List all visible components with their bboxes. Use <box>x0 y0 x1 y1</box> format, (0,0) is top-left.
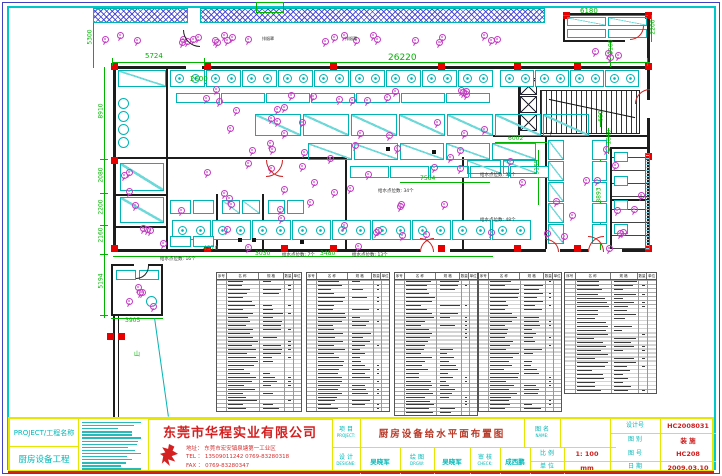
table-header-cell: 名 称 <box>227 273 259 279</box>
equipment-table: 序号名 称规 格数量单位 <box>306 272 390 412</box>
note-line <box>82 425 134 426</box>
category-value: 装 施 <box>660 433 716 447</box>
item-value: 厨房设备给水平面布置图 <box>360 419 524 447</box>
note-line <box>82 450 135 451</box>
note-line <box>82 431 132 432</box>
category-label: 图 别 <box>610 433 660 447</box>
sheet-bottom-rule <box>8 471 714 473</box>
table-header-cell: 数量 <box>372 273 381 279</box>
checker-name: 成西鹏 <box>500 447 530 474</box>
table-header-cell: 规 格 <box>436 273 460 279</box>
check-label: 审 核CHECK: <box>470 447 500 474</box>
note-line <box>82 444 137 445</box>
equipment-table: 序号名 称规 格数量单位 <box>394 272 478 416</box>
table-header-cell: 序号 <box>307 273 317 279</box>
note-line <box>82 462 126 463</box>
design-no-label: 设计号 <box>610 419 660 433</box>
table-header-cell: 单位 <box>553 273 561 279</box>
company-address: 地址： 东莞市宏安镇泉塘第一工业区 <box>186 445 289 453</box>
company-fax: FAX ： 0769-83280347 <box>186 462 289 470</box>
note-line <box>82 459 132 460</box>
equipment-table-header: 序号名 称规 格数量单位 <box>565 273 656 280</box>
designer-name: 吴晓军 <box>360 447 400 474</box>
sheet-no-value: HC208 <box>660 447 716 461</box>
equipment-table-header: 序号名 称规 格数量单位 <box>395 273 477 280</box>
note-line <box>82 428 118 429</box>
name-label: 图 名NAME: <box>524 419 560 447</box>
table-header-cell: 规 格 <box>348 273 372 279</box>
note-line <box>82 468 141 469</box>
table-header-cell: 序号 <box>395 273 405 279</box>
designer-label: 设 计DESIGNE: <box>332 447 360 474</box>
table-body <box>307 280 389 411</box>
titleblock-grid-line <box>148 419 332 420</box>
table-body <box>217 280 301 411</box>
table-header-cell: 序号 <box>565 273 576 279</box>
equipment-list-tables: 序号名 称规 格数量单位序号名 称规 格数量单位序号名 称规 格数量单位序号名 … <box>0 0 722 476</box>
table-header-cell: 数量 <box>638 273 648 279</box>
table-header-cell: 单位 <box>293 273 301 279</box>
table-header-cell: 名 称 <box>317 273 348 279</box>
table-body <box>479 280 561 411</box>
project-label: PROJECT/工程名称 <box>10 419 78 446</box>
equipment-table-header: 序号名 称规 格数量单位 <box>307 273 389 280</box>
note-line <box>82 422 141 423</box>
notes-block <box>78 419 148 472</box>
scale-label: 比 例 <box>530 447 564 461</box>
project-name: 厨房设备工程 <box>10 446 78 472</box>
table-header-cell: 序号 <box>217 273 227 279</box>
table-header-cell: 名 称 <box>576 273 611 279</box>
table-header-cell: 单位 <box>647 273 656 279</box>
note-line <box>82 465 121 466</box>
drawer-name: 吴晓军 <box>434 447 470 474</box>
equipment-table: 序号名 称规 格数量单位 <box>478 272 562 412</box>
drawing-sheet: 5300572426220618022003100260089102080220… <box>0 0 722 476</box>
note-line <box>82 437 141 438</box>
note-line <box>82 434 132 435</box>
draw-label: 绘 图DRGW: <box>400 447 434 474</box>
table-body <box>565 280 656 393</box>
table-header-cell: 名 称 <box>405 273 436 279</box>
table-header-cell: 数量 <box>544 273 553 279</box>
table-header-cell: 数量 <box>460 273 469 279</box>
equipment-table: 序号名 称规 格数量单位 <box>216 272 302 412</box>
table-header-cell: 单位 <box>469 273 477 279</box>
table-header-cell: 规 格 <box>259 273 284 279</box>
equipment-table-header: 序号名 称规 格数量单位 <box>479 273 561 280</box>
company-block: 东莞市华程实业有限公司 地址： 东莞市宏安镇泉塘第一工业区 TEL ： 1350… <box>148 419 332 472</box>
note-line <box>82 441 138 442</box>
company-name: 东莞市华程实业有限公司 <box>154 422 326 441</box>
scale-value: 1: 100 <box>564 447 610 461</box>
company-logo-icon <box>160 444 178 466</box>
titleblock-grid-line <box>78 419 79 472</box>
table-header-cell: 数量 <box>284 273 293 279</box>
design-no-value: HC2008031 <box>660 419 716 433</box>
equipment-table: 序号名 称规 格数量单位 <box>564 272 657 394</box>
note-line <box>82 456 127 457</box>
table-header-cell: 序号 <box>479 273 489 279</box>
note-line <box>82 453 141 454</box>
table-header-cell: 规 格 <box>520 273 544 279</box>
table-body <box>395 280 477 415</box>
equipment-table-header: 序号名 称规 格数量单位 <box>217 273 301 280</box>
titleblock-grid-line <box>148 419 149 472</box>
sheet-no-label: 图 号 <box>610 447 660 461</box>
note-line <box>82 447 128 448</box>
company-contact: 地址： 东莞市宏安镇泉塘第一工业区 TEL ： 13509011242 0769… <box>186 445 289 470</box>
title-block: PROJECT/工程名称 厨房设备工程 东莞市华程实业有限公司 地址： 东莞市宏… <box>8 417 714 472</box>
name-value <box>560 419 610 447</box>
table-header-cell: 单位 <box>381 273 389 279</box>
table-header-cell: 规 格 <box>611 273 638 279</box>
company-tel: TEL ： 13509011242 0769-83280318 <box>186 453 289 461</box>
item-label: 项 目PROJECT: <box>332 419 360 447</box>
titleblock-grid-line <box>10 446 78 447</box>
table-header-cell: 名 称 <box>489 273 520 279</box>
